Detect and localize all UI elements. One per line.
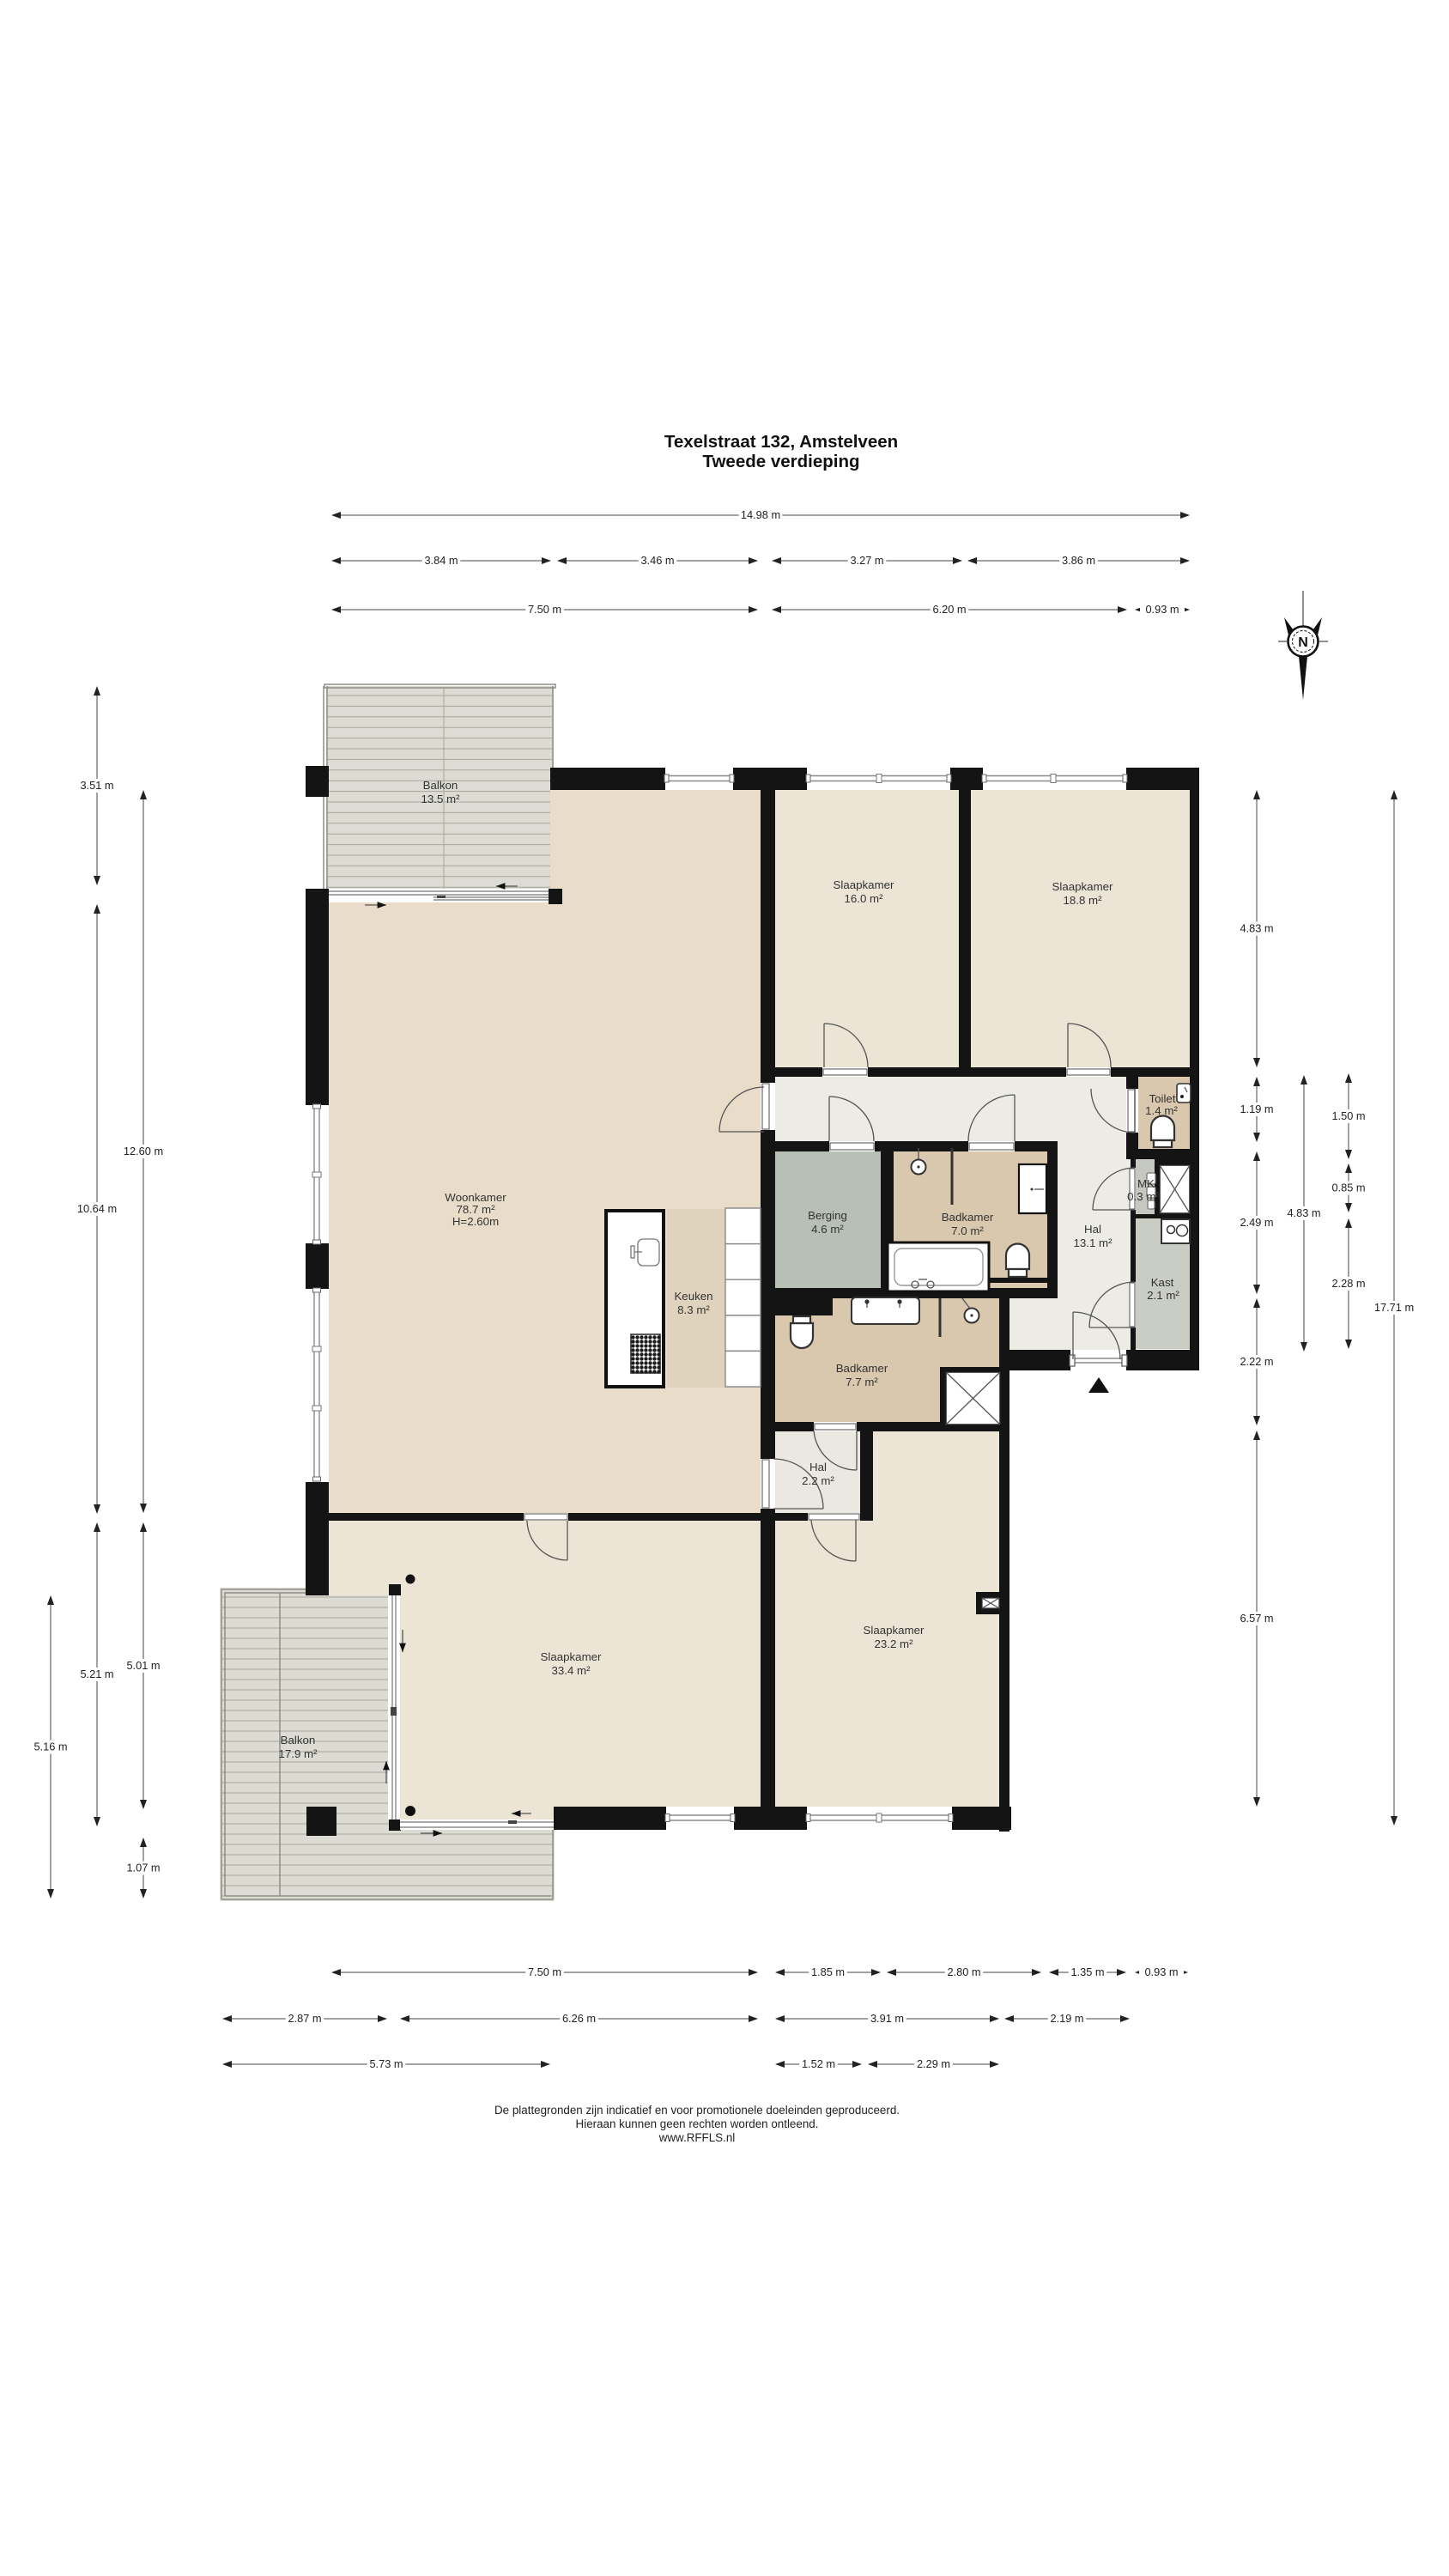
svg-text:18.8 m²: 18.8 m² <box>1063 894 1102 907</box>
svg-text:2.1 m²: 2.1 m² <box>1147 1289 1179 1302</box>
svg-text:Berging: Berging <box>808 1209 847 1222</box>
svg-text:MK: MK <box>1137 1177 1155 1190</box>
svg-text:6.20 m: 6.20 m <box>932 603 966 616</box>
svg-text:Hal: Hal <box>1084 1223 1101 1236</box>
svg-text:1.50 m: 1.50 m <box>1331 1109 1365 1122</box>
svg-text:7.7 m²: 7.7 m² <box>846 1376 878 1388</box>
svg-text:1.35 m: 1.35 m <box>1070 1965 1104 1978</box>
svg-text:17.71 m: 17.71 m <box>1374 1301 1414 1314</box>
svg-text:2.28 m: 2.28 m <box>1331 1277 1365 1290</box>
svg-text:Toilet: Toilet <box>1149 1092 1175 1105</box>
svg-text:De plattegronden zijn indicati: De plattegronden zijn indicatief en voor… <box>494 2104 900 2117</box>
svg-text:Hal: Hal <box>809 1461 827 1473</box>
svg-text:2.49 m: 2.49 m <box>1240 1216 1273 1229</box>
svg-text:2.2 m²: 2.2 m² <box>802 1474 834 1487</box>
svg-text:Keuken: Keuken <box>674 1290 712 1303</box>
svg-text:3.86 m: 3.86 m <box>1062 554 1095 567</box>
svg-text:2.87 m: 2.87 m <box>288 2012 321 2025</box>
svg-text:4.83 m: 4.83 m <box>1240 922 1273 935</box>
svg-text:0.93 m: 0.93 m <box>1145 603 1179 616</box>
svg-text:3.51 m: 3.51 m <box>80 779 113 792</box>
svg-text:2.22 m: 2.22 m <box>1240 1355 1273 1368</box>
svg-text:Balkon: Balkon <box>423 779 458 792</box>
svg-text:14.98 m: 14.98 m <box>741 508 780 521</box>
svg-text:16.0 m²: 16.0 m² <box>844 892 883 905</box>
svg-text:8.3 m²: 8.3 m² <box>677 1303 710 1316</box>
svg-text:1.07 m: 1.07 m <box>126 1862 160 1874</box>
svg-text:Slaapkamer: Slaapkamer <box>864 1624 925 1637</box>
svg-text:4.83 m: 4.83 m <box>1287 1206 1320 1219</box>
svg-text:23.2 m²: 23.2 m² <box>874 1637 913 1650</box>
svg-text:1.19 m: 1.19 m <box>1240 1103 1273 1115</box>
svg-text:13.1 m²: 13.1 m² <box>1073 1236 1113 1249</box>
svg-text:5.01 m: 5.01 m <box>126 1659 160 1672</box>
svg-text:3.46 m: 3.46 m <box>640 554 674 567</box>
svg-text:Tweede verdieping: Tweede verdieping <box>702 452 859 471</box>
svg-text:17.9 m²: 17.9 m² <box>278 1747 318 1760</box>
svg-text:13.5 m²: 13.5 m² <box>421 793 460 805</box>
svg-text:N: N <box>1298 635 1308 650</box>
svg-text:1.85 m: 1.85 m <box>811 1965 845 1978</box>
svg-text:33.4 m²: 33.4 m² <box>551 1664 591 1677</box>
svg-text:7.0 m²: 7.0 m² <box>951 1224 984 1237</box>
svg-text:www.RFFLS.nl: www.RFFLS.nl <box>658 2131 736 2144</box>
svg-text:2.29 m: 2.29 m <box>917 2057 950 2070</box>
svg-text:7.50 m: 7.50 m <box>528 1965 561 1978</box>
svg-text:78.7 m²: 78.7 m² <box>456 1203 495 1216</box>
svg-text:3.27 m: 3.27 m <box>850 554 883 567</box>
svg-text:Texelstraat 132, Amstelveen: Texelstraat 132, Amstelveen <box>664 432 898 452</box>
svg-text:5.73 m: 5.73 m <box>369 2057 403 2070</box>
svg-text:Hieraan kunnen geen rechten wo: Hieraan kunnen geen rechten worden ontle… <box>576 2117 819 2130</box>
svg-text:0.93 m: 0.93 m <box>1144 1965 1178 1978</box>
svg-text:Kast: Kast <box>1151 1276 1174 1289</box>
svg-text:Slaapkamer: Slaapkamer <box>834 878 895 891</box>
svg-text:10.64 m: 10.64 m <box>77 1202 117 1215</box>
svg-text:H=2.60m: H=2.60m <box>452 1215 499 1228</box>
svg-text:0.85 m: 0.85 m <box>1331 1182 1365 1194</box>
svg-text:Slaapkamer: Slaapkamer <box>541 1650 603 1663</box>
svg-text:2.80 m: 2.80 m <box>947 1965 980 1978</box>
svg-text:Woonkamer: Woonkamer <box>445 1191 506 1204</box>
svg-text:2.19 m: 2.19 m <box>1050 2012 1083 2025</box>
svg-text:1.4 m²: 1.4 m² <box>1145 1104 1178 1117</box>
svg-text:7.50 m: 7.50 m <box>528 603 561 616</box>
svg-text:0.3 m²: 0.3 m² <box>1127 1190 1160 1203</box>
svg-text:6.26 m: 6.26 m <box>562 2012 596 2025</box>
svg-text:6.57 m: 6.57 m <box>1240 1612 1273 1625</box>
svg-text:3.84 m: 3.84 m <box>424 554 458 567</box>
svg-text:3.91 m: 3.91 m <box>870 2012 904 2025</box>
svg-text:Badkamer: Badkamer <box>942 1211 994 1224</box>
svg-text:5.16 m: 5.16 m <box>33 1741 67 1753</box>
svg-text:5.21 m: 5.21 m <box>80 1668 113 1680</box>
svg-text:Balkon: Balkon <box>281 1734 316 1747</box>
svg-text:Slaapkamer: Slaapkamer <box>1052 880 1114 893</box>
svg-text:4.6 m²: 4.6 m² <box>811 1223 844 1236</box>
svg-text:12.60 m: 12.60 m <box>124 1145 163 1157</box>
svg-text:1.52 m: 1.52 m <box>802 2057 835 2070</box>
svg-text:Badkamer: Badkamer <box>836 1362 888 1375</box>
